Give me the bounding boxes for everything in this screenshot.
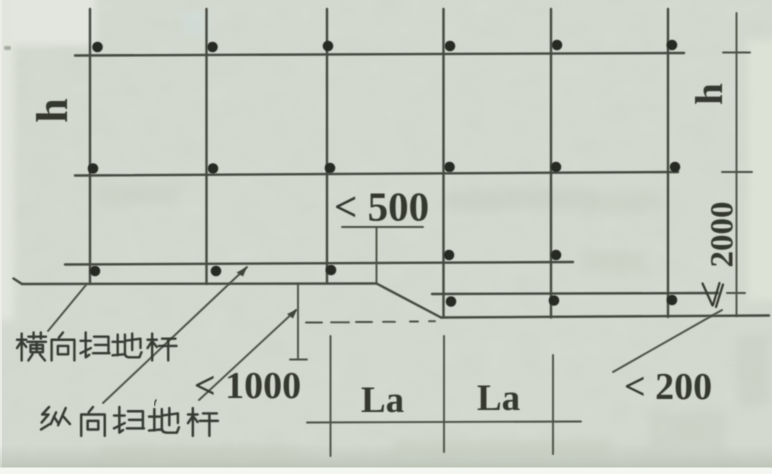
svg-text:2000: 2000	[705, 202, 741, 268]
svg-text:< 200: < 200	[624, 366, 712, 408]
svg-text:La: La	[361, 380, 404, 421]
svg-text:La: La	[477, 378, 520, 419]
svg-text:h: h	[28, 98, 77, 122]
svg-text:< 1000: < 1000	[194, 365, 301, 407]
svg-text:h: h	[688, 83, 731, 105]
svg-text:< 500: < 500	[334, 184, 429, 230]
